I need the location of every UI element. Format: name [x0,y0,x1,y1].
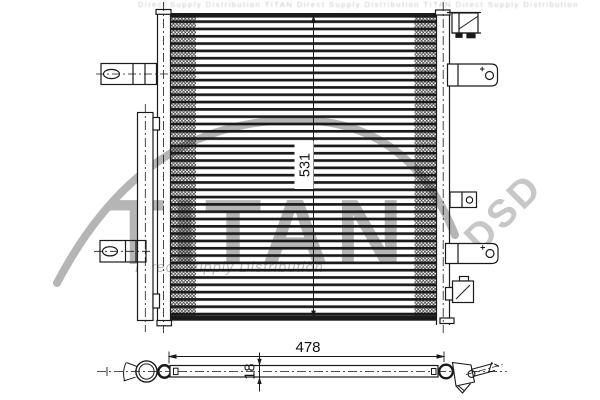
fitting-mid-right [450,192,477,208]
bottom-profile-view [97,361,507,393]
profile-fitting-right [453,362,504,393]
mounting-bracket-bottom-right [446,244,499,264]
right-header-tank [436,2,455,333]
receiver-drier [138,104,160,332]
dim-478-label: 478 [295,339,320,356]
dimension-width: 478 [168,339,446,364]
mounting-bracket-top-left [96,64,170,85]
bracket-hole [486,250,494,258]
fitting-hole [466,197,472,203]
mounting-bracket-top-right [448,64,498,86]
dim-18-label: 18 [243,363,259,379]
left-header-tank [156,2,172,333]
bracket-hole [486,72,494,80]
dim-531-label: 531 [298,153,314,177]
condenser-technical-drawing: Direct Supply Distribution TITAN Direct … [0,0,600,400]
line-drawing: 531 [0,0,600,400]
inlet-fitting-top-right [447,13,481,38]
